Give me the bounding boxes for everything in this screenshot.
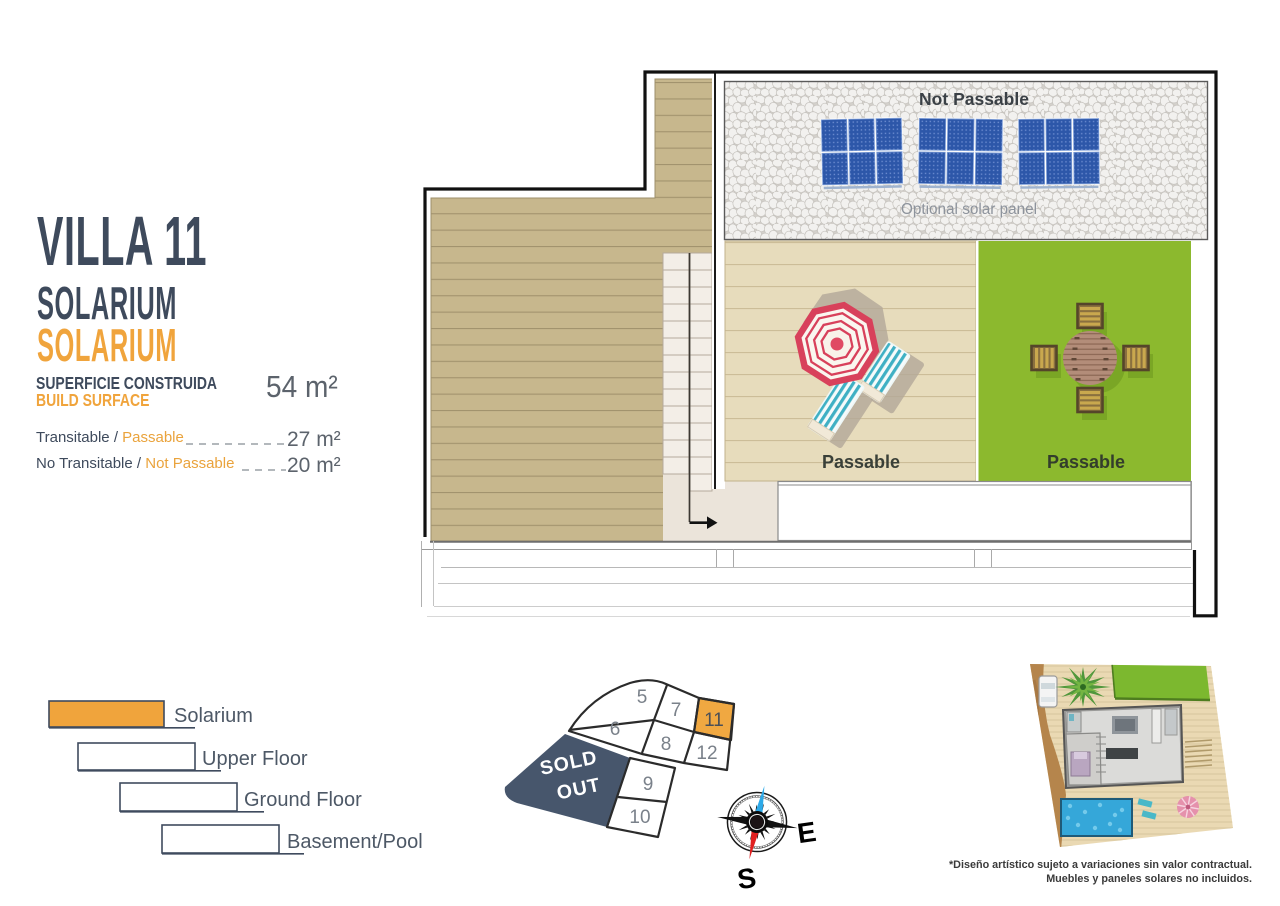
svg-text:11: 11 [704,710,724,731]
svg-text:Optional solar panel: Optional solar panel [901,201,1037,218]
svg-text:7: 7 [671,700,682,721]
svg-text:5: 5 [637,687,648,708]
svg-text:VILLA 11: VILLA 11 [37,203,207,281]
svg-text:Passable: Passable [822,452,900,472]
svg-text:Upper Floor: Upper Floor [202,748,308,770]
svg-text:12: 12 [696,743,717,764]
svg-text:Transitable / Passable: Transitable / Passable [36,429,184,446]
svg-text:BUILD SURFACE: BUILD SURFACE [36,392,149,411]
svg-text:Muebles y paneles solares no i: Muebles y paneles solares no incluidos. [1046,873,1252,885]
svg-text:20 m²: 20 m² [287,454,341,477]
svg-text:Basement/Pool: Basement/Pool [287,831,423,853]
svg-text:10: 10 [629,807,650,828]
svg-text:SUPERFICIE CONSTRUIDA: SUPERFICIE CONSTRUIDA [36,375,218,394]
svg-text:Ground Floor: Ground Floor [244,789,362,811]
svg-text:*Diseño artístico sujeto a var: *Diseño artístico sujeto a variaciones s… [949,859,1252,871]
svg-text:Not Passable: Not Passable [919,89,1029,109]
svg-text:6: 6 [610,719,621,740]
svg-text:Solarium: Solarium [174,705,253,727]
svg-text:SOLARIUM: SOLARIUM [37,319,177,371]
svg-text:Passable: Passable [1047,452,1125,472]
svg-text:27 m²: 27 m² [287,428,341,451]
svg-text:54 m²: 54 m² [266,370,338,404]
svg-text:No Transitable / Not Passable: No Transitable / Not Passable [36,455,234,472]
svg-text:8: 8 [661,734,672,755]
svg-text:9: 9 [643,774,654,795]
